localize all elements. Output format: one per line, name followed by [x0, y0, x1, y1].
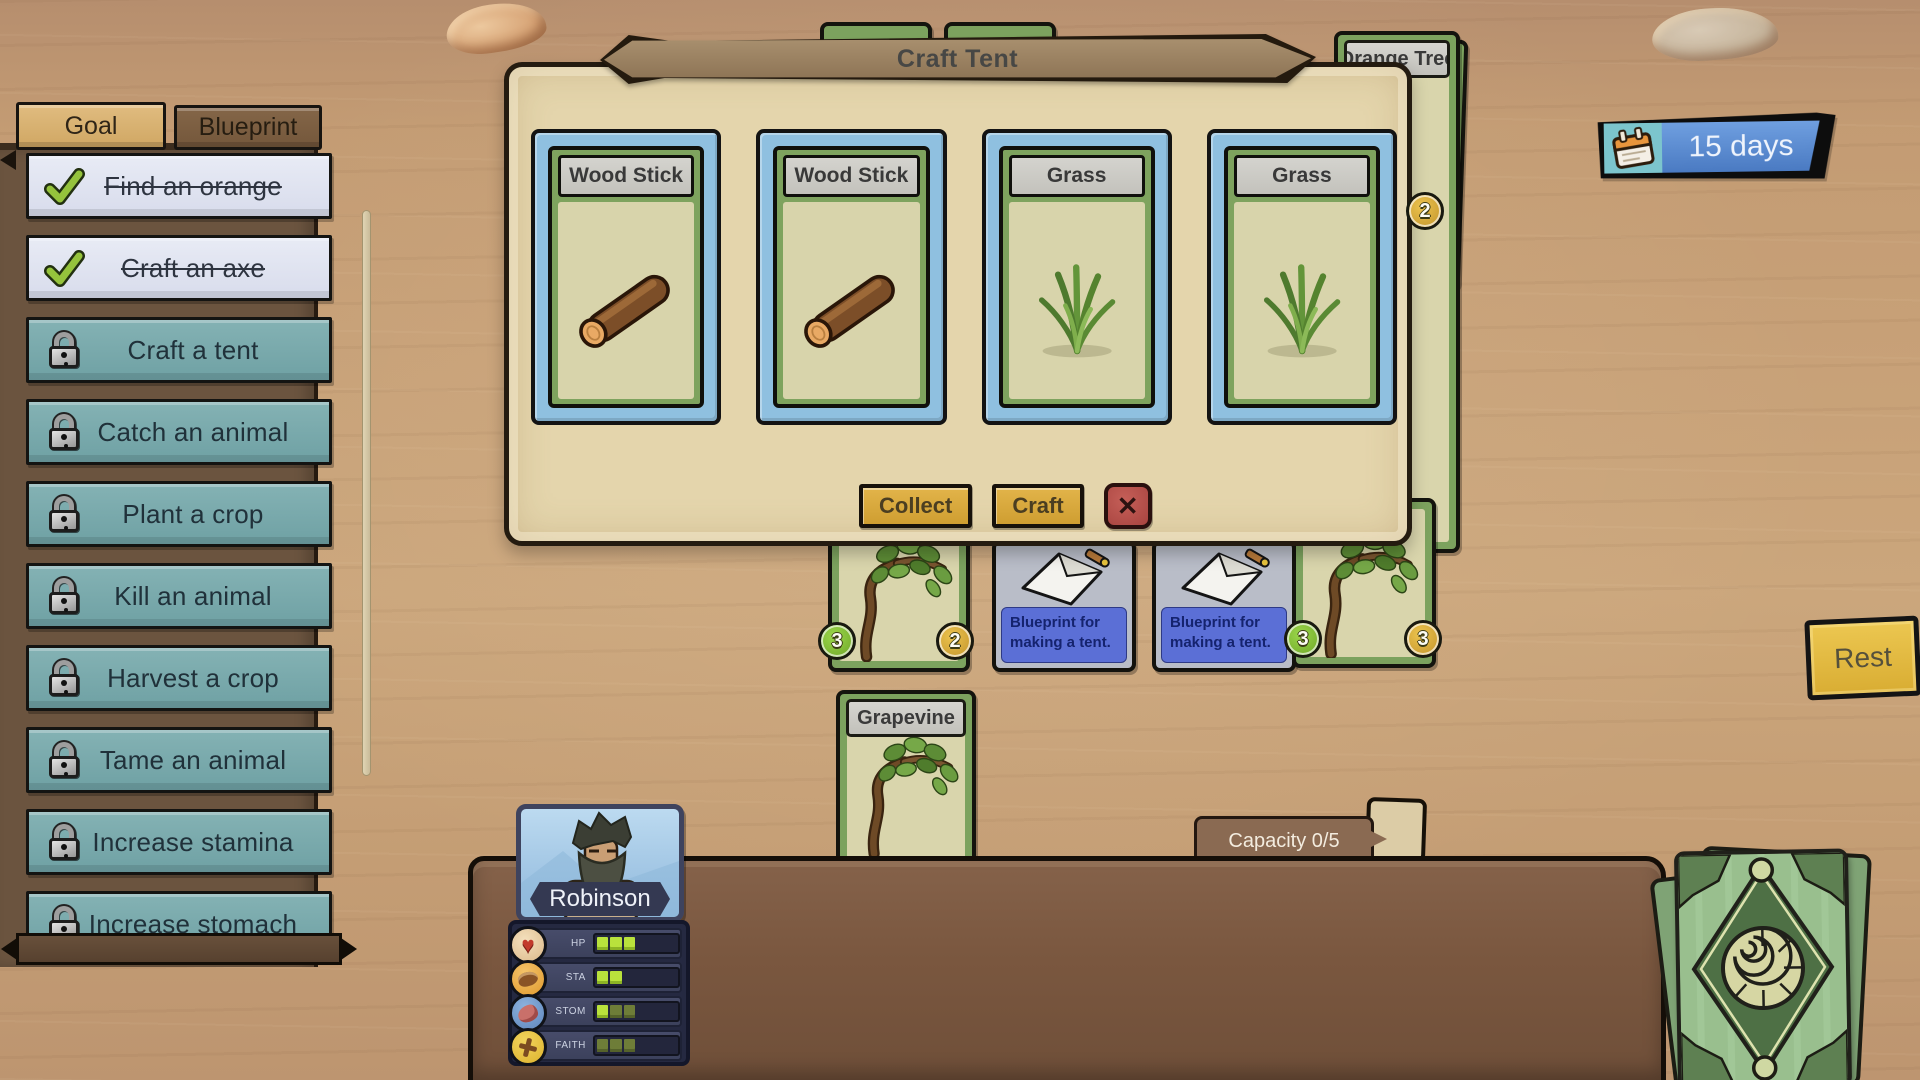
- wood-stick-art: [558, 216, 694, 386]
- check-icon: [43, 248, 85, 288]
- ingredient-card[interactable]: Wood Stick: [548, 146, 704, 408]
- ingredient-card-art: [1234, 202, 1370, 399]
- stat-segment: [624, 1039, 636, 1052]
- rest-button[interactable]: Rest: [1804, 616, 1920, 701]
- stat-segment: [664, 1039, 676, 1052]
- goal-item-kill-an-animal[interactable]: Kill an animal: [26, 563, 332, 629]
- lock-icon: [49, 496, 79, 532]
- seashell-decoration: [443, 0, 549, 60]
- grapevine-card[interactable]: Grapevine: [836, 690, 976, 870]
- grapevine-count-badge: 3: [1284, 620, 1322, 658]
- game-table: Goal Blueprint Find an orange: [0, 0, 1920, 1080]
- craft-slot-wood-stick[interactable]: Wood Stick: [531, 129, 721, 425]
- stat-row-stom: STOM: [516, 996, 682, 1027]
- stat-segment: [664, 971, 676, 984]
- ingredient-card-title: Wood Stick: [783, 155, 919, 197]
- goal-item-label: Plant a crop: [87, 499, 329, 530]
- lock-icon: [49, 414, 79, 450]
- goal-item-label: Catch an animal: [87, 417, 329, 448]
- stat-segment: [597, 1005, 609, 1018]
- day-counter: 15 days: [1598, 112, 1837, 181]
- card-behind-board: [1365, 797, 1427, 863]
- craft-modal-buttons: Collect Craft ✕: [859, 483, 1152, 529]
- character-name: Robinson: [530, 882, 670, 916]
- blueprint-card-text: Blueprint for making a tent.: [1001, 607, 1127, 663]
- grass-art: [1009, 216, 1145, 386]
- ingredient-card[interactable]: Wood Stick: [773, 146, 929, 408]
- stat-segment: [651, 1039, 663, 1052]
- goal-item-label: Find an orange: [87, 171, 329, 202]
- ingredient-card-art: [1009, 202, 1145, 399]
- stat-bar: [593, 933, 680, 954]
- goal-item-catch-an-animal[interactable]: Catch an animal: [26, 399, 332, 465]
- blueprint-card[interactable]: Blueprint for making a tent.: [992, 540, 1136, 672]
- collect-button[interactable]: Collect: [859, 484, 972, 528]
- goal-item-craft-an-axe[interactable]: Craft an axe: [26, 235, 332, 301]
- stat-label: HP: [552, 938, 590, 949]
- stat-segment: [610, 937, 622, 950]
- stat-segment: [651, 1005, 663, 1018]
- stat-segment: [637, 1039, 649, 1052]
- seashell-decoration: [1650, 4, 1779, 65]
- wood-stick-art: [783, 216, 919, 386]
- goal-item-harvest-a-crop[interactable]: Harvest a crop: [26, 645, 332, 711]
- goal-item-label: Craft a tent: [87, 335, 329, 366]
- stat-bar: [593, 1001, 680, 1022]
- stat-segment: [664, 1005, 676, 1018]
- stat-row-faith: FAITH: [516, 1030, 682, 1061]
- grapevine-uses-badge: 3: [1404, 620, 1442, 658]
- stat-row-sta: STA: [516, 962, 682, 993]
- goal-item-label: Tame an animal: [87, 745, 329, 776]
- grass-art: [1234, 216, 1370, 386]
- day-counter-value: 15 days: [1662, 121, 1821, 173]
- ingredient-card[interactable]: Grass: [1224, 146, 1380, 408]
- goal-item-find-an-orange[interactable]: Find an orange: [26, 153, 332, 219]
- stat-label: STA: [552, 972, 590, 983]
- goal-panel-footer: [16, 933, 342, 965]
- heart-icon: [509, 926, 547, 964]
- stat-segment: [637, 937, 649, 950]
- stat-segment: [624, 971, 636, 984]
- stat-segment: [651, 937, 663, 950]
- ingredient-card[interactable]: Grass: [999, 146, 1155, 408]
- craft-modal-title: Craft Tent: [897, 45, 1018, 74]
- blueprint-card[interactable]: Blueprint for making a tent.: [1152, 540, 1296, 672]
- blueprint-paper-icon: [1169, 546, 1279, 608]
- cross-icon: [509, 1028, 547, 1066]
- orange-tree-count-badge: 2: [1406, 192, 1444, 230]
- ingredient-card-art: [783, 202, 919, 399]
- card-back-ammonite-icon: [1674, 848, 1852, 1080]
- stat-segment: [610, 1005, 622, 1018]
- stat-segment: [651, 971, 663, 984]
- lock-icon: [49, 824, 79, 860]
- goal-item-plant-a-crop[interactable]: Plant a crop: [26, 481, 332, 547]
- stat-segment: [610, 971, 622, 984]
- grapevine-count-badge: 3: [818, 622, 856, 660]
- grapevine-uses-badge: 2: [936, 622, 974, 660]
- lock-icon: [49, 742, 79, 778]
- character-stats-panel: HP STA STOM FAITH: [508, 920, 690, 1066]
- stat-segment: [637, 1005, 649, 1018]
- check-icon: [43, 166, 85, 206]
- close-icon[interactable]: ✕: [1104, 483, 1152, 529]
- stamina-icon: [509, 960, 547, 998]
- stat-segment: [624, 1005, 636, 1018]
- craft-modal-title-banner: Craft Tent: [600, 34, 1316, 84]
- grapevine-card-title: Grapevine: [846, 699, 966, 737]
- stat-segment: [624, 937, 636, 950]
- stat-row-hp: HP: [516, 928, 682, 959]
- stat-label: STOM: [552, 1006, 590, 1017]
- stat-bar: [593, 967, 680, 988]
- craft-tent-modal: Wood Stick Wood Stick Grass: [504, 62, 1412, 546]
- stat-segment: [610, 1039, 622, 1052]
- ingredient-card-title: Grass: [1234, 155, 1370, 197]
- lock-icon: [49, 578, 79, 614]
- lock-icon: [49, 660, 79, 696]
- calendar-icon: [1604, 123, 1663, 174]
- goal-item-increase-stamina[interactable]: Increase stamina: [26, 809, 332, 875]
- craft-slot-wood-stick[interactable]: Wood Stick: [756, 129, 946, 425]
- goal-list: Find an orange Craft an axe: [26, 153, 332, 973]
- stat-bar: [593, 1035, 680, 1056]
- craft-slot-grass[interactable]: Grass: [982, 129, 1172, 425]
- craft-ingredient-row: Wood Stick Wood Stick Grass: [531, 129, 1397, 425]
- stat-segment: [597, 971, 609, 984]
- grapevine-art: [846, 720, 966, 860]
- craft-slot-grass[interactable]: Grass: [1207, 129, 1397, 425]
- tab-blueprint[interactable]: Blueprint: [174, 105, 322, 150]
- lock-icon: [49, 332, 79, 368]
- stat-segment: [597, 937, 609, 950]
- goal-list-scrollbar[interactable]: [362, 210, 371, 776]
- stomach-icon: [509, 994, 547, 1032]
- blueprint-card-text: Blueprint for making a tent.: [1161, 607, 1287, 663]
- ingredient-card-title: Grass: [1009, 155, 1145, 197]
- goal-panel-arrow: [0, 150, 16, 170]
- ingredient-card-art: [558, 202, 694, 399]
- tab-goal[interactable]: Goal: [16, 102, 166, 150]
- goal-item-label: Craft an axe: [87, 253, 329, 284]
- goal-item-craft-a-tent[interactable]: Craft a tent: [26, 317, 332, 383]
- blueprint-paper-icon: [1009, 546, 1119, 608]
- goal-item-label: Kill an animal: [87, 581, 329, 612]
- stat-label: FAITH: [552, 1040, 590, 1051]
- goal-item-label: Increase stamina: [87, 827, 329, 858]
- stat-segment: [637, 971, 649, 984]
- ingredient-card-title: Wood Stick: [558, 155, 694, 197]
- draw-pile-deck[interactable]: [1652, 838, 1920, 1080]
- goal-item-label: Harvest a crop: [87, 663, 329, 694]
- goal-item-tame-an-animal[interactable]: Tame an animal: [26, 727, 332, 793]
- stat-segment: [597, 1039, 609, 1052]
- stat-segment: [664, 937, 676, 950]
- craft-button[interactable]: Craft: [992, 484, 1083, 528]
